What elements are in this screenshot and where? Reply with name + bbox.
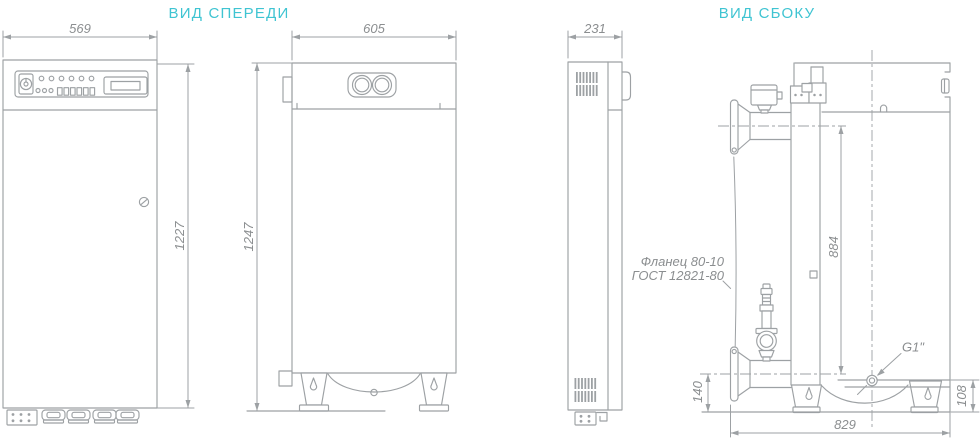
dimension-boiler-height: 1247 — [241, 63, 292, 411]
dim-cabinet-width: 569 — [69, 21, 91, 36]
terminal-block — [7, 410, 37, 425]
panel-display — [104, 77, 147, 94]
panel-buttons — [58, 88, 95, 96]
front-view-control-cabinet — [3, 60, 157, 425]
dim-boiler-height: 1247 — [241, 222, 256, 252]
junction-boxes — [791, 83, 827, 103]
side-view-title: ВИД СБОКУ — [719, 5, 816, 22]
technical-drawing: ВИД СПЕРЕДИ ВИД СБОКУ — [0, 0, 980, 439]
dim-pipe-axis-spacing: 884 — [826, 236, 841, 258]
dimension-cabinet-width: 569 — [3, 21, 157, 64]
dimension-boiler-width: 605 — [292, 21, 456, 60]
dim-cabinet-depth: 231 — [583, 21, 606, 36]
flange-note-line2: ГОСТ 12821-80 — [632, 268, 725, 283]
upper-flange — [731, 100, 739, 154]
flange-note-line1: Фланец 80-10 — [641, 254, 725, 269]
control-panel — [15, 71, 148, 97]
side-view-control-cabinet — [568, 62, 631, 425]
side-bracket-bottom — [279, 371, 292, 386]
door-lock — [139, 197, 148, 206]
boiler-legs-front — [247, 373, 449, 411]
flue-ports — [348, 73, 396, 97]
dimension-cabinet-height: 1227 — [157, 64, 194, 408]
dim-cabinet-height: 1227 — [172, 221, 187, 251]
vent-grille-bottom — [575, 384, 598, 397]
clamp-mark — [881, 105, 887, 112]
dimension-pipe-axis-spacing: 884 — [826, 126, 844, 374]
door-handle-side — [622, 72, 631, 100]
side-view-boiler: G1" Фланец 80-10 ГОСТ 12821-80 884 140 — [632, 50, 979, 437]
dim-boiler-depth: 829 — [834, 417, 856, 432]
dimension-drain-height: 108 — [951, 380, 979, 412]
drawing-canvas: ВИД СПЕРЕДИ ВИД СБОКУ — [0, 0, 980, 439]
heating-column — [791, 103, 820, 385]
side-bracket-top — [283, 77, 292, 102]
front-view-boiler — [247, 63, 456, 411]
temperature-sensor — [751, 85, 782, 113]
dim-lower-pipe-height: 140 — [690, 380, 705, 402]
drain-port — [858, 354, 902, 395]
dim-boiler-width: 605 — [363, 21, 385, 36]
bottom-connector — [575, 412, 607, 425]
dim-drain-height: 108 — [954, 384, 969, 406]
cable-glands — [42, 410, 139, 423]
front-view-title: ВИД СПЕРЕДИ — [169, 5, 290, 22]
dimension-cabinet-depth: 231 — [568, 21, 622, 58]
dimension-lower-pipe-height: 140 — [690, 374, 711, 412]
drain-thread-label: G1" — [902, 340, 925, 355]
hinge — [942, 79, 950, 93]
flange-note: Фланец 80-10 ГОСТ 12821-80 — [632, 157, 736, 346]
power-knob-icon — [19, 74, 33, 94]
indicator-leds — [36, 76, 94, 92]
vent-grille-top — [576, 78, 599, 91]
relief-valve — [756, 284, 777, 361]
